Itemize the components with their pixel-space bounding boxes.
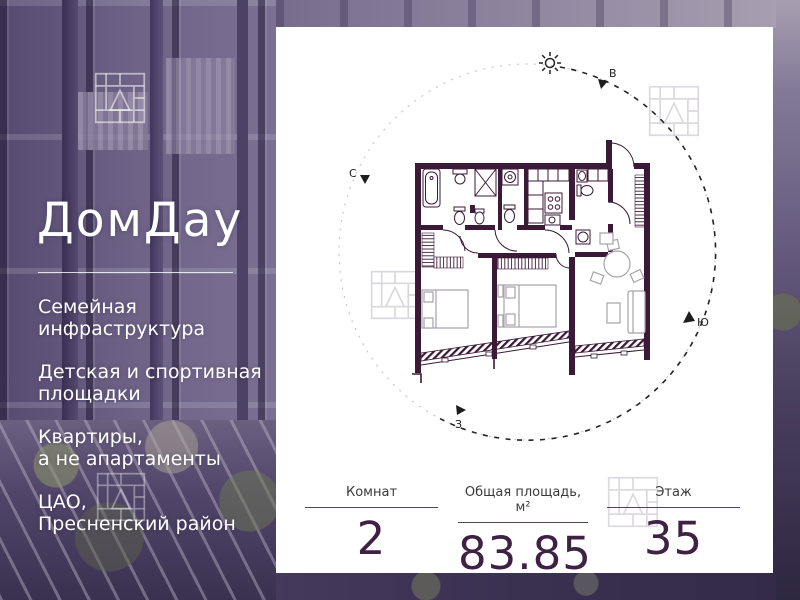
- fixtures: [423, 169, 608, 244]
- stats-row: Комнат 2 Общая площадь, м² 83.85 Этаж 35: [305, 485, 740, 580]
- stat-total-area: Общая площадь, м² 83.85: [458, 485, 588, 580]
- stat-value: 83.85: [458, 527, 588, 580]
- feature-item: Детская и спортивная площадки: [38, 361, 262, 405]
- feature-line: площадки: [38, 383, 141, 405]
- sun-icon: [539, 52, 561, 74]
- brand-watermark-icon: [650, 87, 699, 136]
- brand-logo: ДомДау: [37, 193, 243, 248]
- photo-top-edge: [276, 0, 776, 28]
- photo-right-edge: [772, 0, 800, 600]
- brand-watermark-icon: [94, 72, 146, 124]
- divider: [38, 272, 233, 273]
- feature-line: Детская и спортивная: [38, 361, 262, 383]
- feature-list: Семейная инфраструктура Детская и спорти…: [38, 296, 262, 556]
- stat-underline: [607, 507, 740, 508]
- feature-item: Квартиры, а не апартаменты: [38, 426, 262, 470]
- brand-watermark-icon: [372, 272, 419, 319]
- floor-plan-diagram: В С Ю З: [276, 27, 773, 482]
- listing-card[interactable]: В С Ю З: [276, 27, 773, 573]
- compass-west-label: З: [455, 418, 462, 431]
- compass-south-label: Ю: [697, 316, 709, 329]
- compass-west-arrow: [456, 405, 466, 415]
- stat-floor: Этаж 35: [607, 485, 740, 580]
- compass-east-label: В: [609, 67, 617, 80]
- compass-south-arrow: [683, 311, 695, 323]
- feature-line: Квартиры,: [38, 426, 143, 448]
- feature-item: Семейная инфраструктура: [38, 296, 262, 340]
- feature-line: инфраструктура: [38, 318, 205, 340]
- stat-label: Общая площадь, м²: [458, 485, 588, 515]
- feature-item: ЦАО, Пресненский район: [38, 491, 262, 535]
- feature-line: а не апартаменты: [38, 448, 221, 470]
- stat-underline: [305, 507, 438, 508]
- stat-label: Комнат: [305, 485, 438, 500]
- page: ДомДау Семейная инфраструктура Детская и…: [0, 0, 800, 600]
- brand-watermark-icon: [96, 472, 146, 522]
- glazing-bands: [421, 331, 644, 365]
- feature-line: Семейная: [38, 296, 137, 318]
- brand-panel: ДомДау Семейная инфраструктура Детская и…: [0, 0, 278, 600]
- feature-line: ЦАО,: [38, 491, 87, 513]
- compass-north-label: С: [349, 167, 357, 180]
- compass-north-arrow: [360, 175, 370, 184]
- stat-underline: [458, 522, 588, 523]
- stat-value: 35: [607, 512, 740, 565]
- stat-label: Этаж: [607, 485, 740, 500]
- compass-east-arrow: [598, 79, 608, 89]
- stat-value: 2: [305, 512, 438, 565]
- furniture: [422, 233, 645, 333]
- stat-rooms: Комнат 2: [305, 485, 438, 580]
- orientation-circle: [339, 64, 715, 440]
